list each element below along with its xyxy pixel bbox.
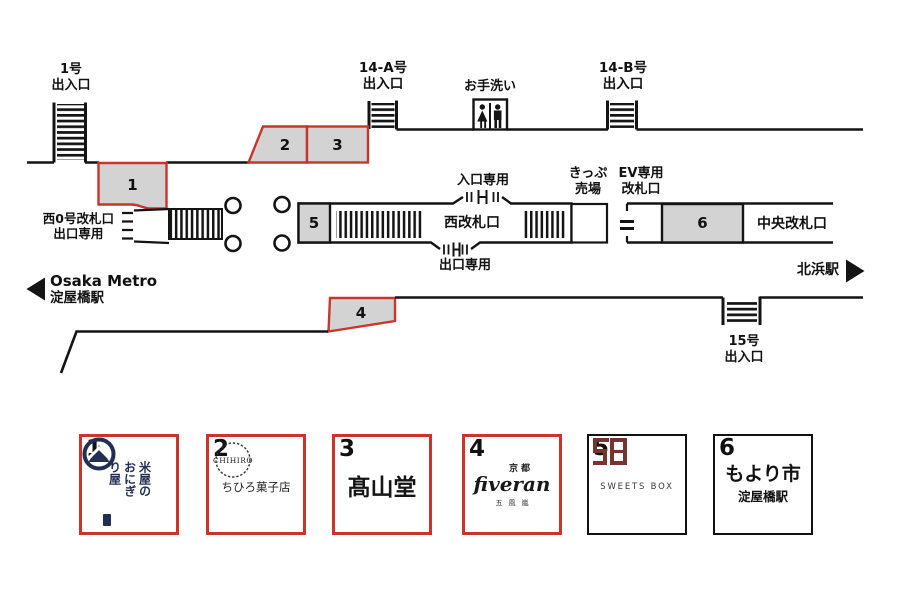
map-marker-2: 2 <box>280 136 290 154</box>
shop-logo-title: CHIHIRO <box>213 456 253 465</box>
map-marker-1: 1 <box>127 176 137 194</box>
central-gate-label: 中央改札口 <box>757 216 827 233</box>
shop-card-chihiro: 2 CHIHIRO ちひろ菓子店 <box>206 434 306 535</box>
shop-card-onigiriya: 1 米屋の おにぎ り屋 <box>79 434 179 535</box>
exit-1-label: 1号 出入口 <box>51 62 90 93</box>
ticket-office-box <box>572 204 608 243</box>
exit-gate-icon <box>444 243 467 257</box>
arrow-left-icon <box>27 278 46 301</box>
ev-gate-label: EV専用 改札口 <box>619 166 664 197</box>
shop-card-fiveran: 4 京都 fiveran 五風嵐 <box>462 434 562 535</box>
exit-14b-label: 14-B号 出入口 <box>599 60 647 92</box>
map-marker-4: 4 <box>356 304 366 322</box>
west-gate-label: 西改札口 <box>444 215 500 232</box>
entrance-gate-icon <box>467 190 498 204</box>
onigiri-emblem-icon <box>82 437 116 471</box>
shop-name: 髙山堂 <box>348 468 417 502</box>
sweetsbox-monogram-icon <box>589 436 629 468</box>
west-gate-hall <box>299 190 572 257</box>
exit-15-label: 15号 出入口 <box>724 334 763 365</box>
top-corridor-walls <box>27 130 863 163</box>
restroom-label: お手洗い <box>464 79 516 95</box>
station-map-page: 1号 出入口 14-A号 出入口 お手洗い 14-B号 出入口 西0号改札口 出… <box>0 0 900 600</box>
west0-gate-label: 西0号改札口 出口専用 <box>43 211 114 241</box>
pillars <box>226 197 290 251</box>
chihiro-logo-icon: CHIHIRO <box>209 437 257 483</box>
shop-card-takayamado: 3 髙山堂 <box>332 434 432 535</box>
exit-14b-stairs <box>608 101 637 130</box>
shop-name: もより市 <box>725 464 801 485</box>
ticket-office-label: きっぷ 売場 <box>569 166 607 197</box>
station-left-label: Osaka Metro 淀屋橋駅 <box>50 272 157 306</box>
shop-sub-text: 五風嵐 <box>496 498 535 508</box>
map-box-2 <box>249 127 308 163</box>
ev-gate-icon <box>620 204 634 243</box>
arrow-right-icon <box>846 260 865 283</box>
hanko-seal-icon <box>103 514 111 526</box>
west0-gate <box>122 209 222 243</box>
restroom-box <box>474 100 508 130</box>
exit-only-label: 出口専用 <box>439 258 491 274</box>
shop-card-sweetsbox: 5 SWEETS BOX <box>587 434 687 535</box>
exit-14a-label: 14-A号 出入口 <box>359 60 407 92</box>
shop-name: fiveran <box>474 474 551 494</box>
exit-15-stairs <box>723 297 760 326</box>
shop-sub-text: 淀屋橋駅 <box>738 486 788 505</box>
station-right-label: 北浜駅 <box>797 262 839 279</box>
shop-name: SWEETS BOX <box>600 482 673 492</box>
map-marker-3: 3 <box>332 136 342 154</box>
entrance-only-label: 入口専用 <box>457 173 509 189</box>
shop-card-moyoriichi: 6 もより市 淀屋橋駅 <box>713 434 813 535</box>
exit-14a-stairs <box>369 101 397 130</box>
map-marker-6: 6 <box>697 214 707 232</box>
exit-1-stairs <box>54 103 86 163</box>
map-marker-5: 5 <box>309 214 319 232</box>
